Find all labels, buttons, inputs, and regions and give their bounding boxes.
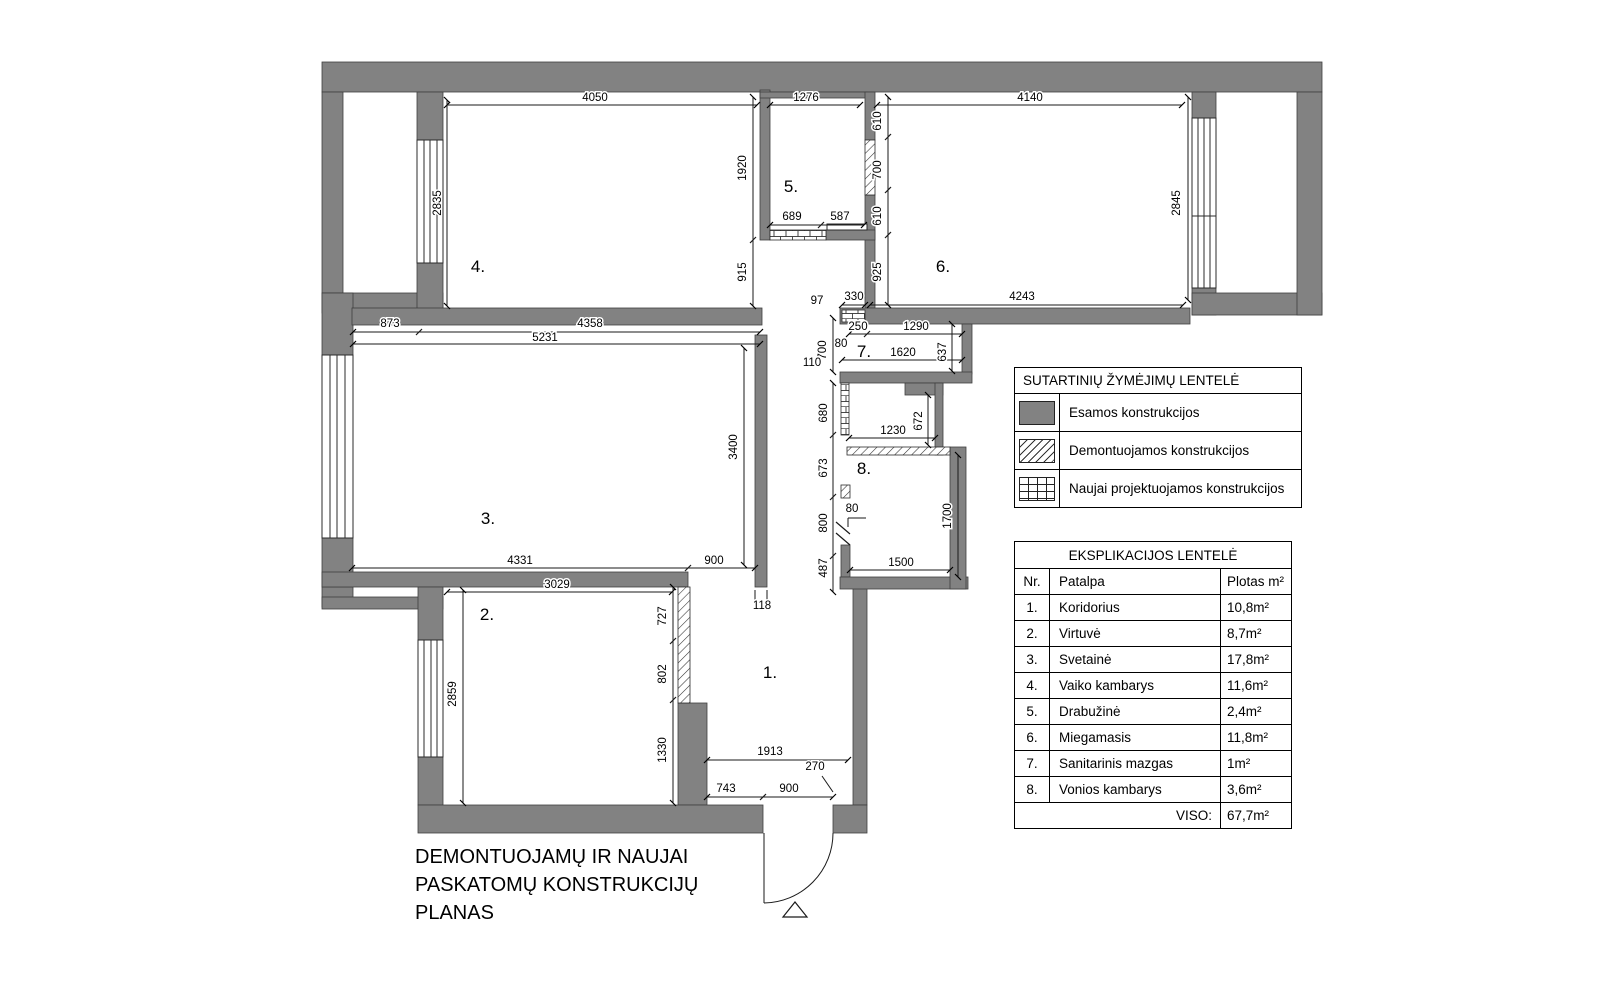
row-nr: 5. [1015, 699, 1050, 724]
dim-label: 2859 [447, 681, 459, 707]
dim-label: 689 [782, 211, 801, 223]
drawing-title: DEMONTUOJAMŲ IR NAUJAI PASKATOMŲ KONSTRU… [415, 843, 698, 927]
room-label-7: 7. [857, 342, 871, 361]
table-row: 4. Vaiko kambarys 11,6m² [1015, 673, 1291, 699]
dim-label: 1290 [903, 321, 929, 333]
row-area: 11,6m² [1221, 673, 1291, 698]
table-row: 6. Miegamasis 11,8m² [1015, 725, 1291, 751]
dim-label: 1276 [793, 92, 819, 104]
dim-label: 743 [716, 783, 735, 795]
dim-label: 4358 [577, 318, 603, 330]
dim-label: 3400 [728, 434, 740, 460]
dim-label: 118 [753, 600, 771, 612]
row-name: Koridorius [1050, 595, 1221, 620]
row-area: 11,8m² [1221, 725, 1291, 750]
dim-label: 672 [913, 411, 925, 430]
total-label: VISO: [1015, 803, 1221, 828]
dim-label: 900 [779, 783, 798, 795]
dim-label: 1230 [880, 425, 906, 437]
dim-label: 5231 [532, 332, 558, 344]
dim-label: 637 [937, 342, 949, 361]
dim-label: 680 [818, 403, 830, 422]
row-name: Miegamasis [1050, 725, 1221, 750]
dim-label: 1330 [657, 737, 669, 763]
dim-label: 4140 [1017, 92, 1043, 104]
drawing-title-line3: PLANAS [415, 899, 698, 927]
total-value: 67,7m² [1221, 803, 1291, 828]
row-area: 8,7m² [1221, 621, 1291, 646]
explication-table: EKSPLIKACIJOS LENTELĖ Nr. Patalpa Plotas… [1014, 541, 1292, 829]
dim-label: 900 [704, 555, 723, 567]
room-labels: 1. 2. 3. 4. 5. 6. 7. 8. [471, 177, 950, 682]
dim-label: 3029 [544, 579, 570, 591]
table-row: 7. Sanitarinis mazgas 1m² [1015, 751, 1291, 777]
table-row: 2. Virtuvė 8,7m² [1015, 621, 1291, 647]
row-area: 10,8m² [1221, 595, 1291, 620]
dim-label: 700 [872, 160, 884, 179]
legend-title: SUTARTINIŲ ŽYMĖJIMŲ LENTELĖ [1015, 368, 1301, 394]
dim-label: 1700 [942, 503, 954, 529]
door-swing-arc [764, 833, 833, 903]
dim-label: 727 [657, 606, 669, 625]
drawing-title-line1: DEMONTUOJAMŲ IR NAUJAI [415, 843, 698, 871]
entrance-triangle-icon [783, 902, 807, 917]
dim-label: 873 [380, 318, 399, 330]
row-nr: 6. [1015, 725, 1050, 750]
dim-label: 2835 [432, 190, 444, 216]
dim-label: 925 [872, 262, 884, 281]
legend-table: SUTARTINIŲ ŽYMĖJIMŲ LENTELĖ Esamos konst… [1014, 367, 1302, 508]
brick-swatch-icon [1019, 477, 1055, 501]
dim-label: 110 [803, 357, 821, 369]
explication-title: EKSPLIKACIJOS LENTELĖ [1015, 542, 1291, 569]
row-area: 17,8m² [1221, 647, 1291, 672]
dim-label: 915 [737, 262, 749, 281]
dim-label: 4331 [507, 555, 533, 567]
row-nr: 1. [1015, 595, 1050, 620]
dim-label: 587 [830, 211, 849, 223]
legend-label: Naujai projektuojamos konstrukcijos [1060, 470, 1301, 507]
dim-label: 800 [818, 513, 830, 532]
dim-label: 2845 [1171, 190, 1183, 216]
room-label-1: 1. [763, 663, 777, 682]
legend-row-demolished: Demontuojamos konstrukcijos [1015, 432, 1301, 470]
row-name: Sanitarinis mazgas [1050, 751, 1221, 776]
room-label-4: 4. [471, 257, 485, 276]
dim-label: 1620 [890, 347, 916, 359]
table-row: 5. Drabužinė 2,4m² [1015, 699, 1291, 725]
row-name: Vaiko kambarys [1050, 673, 1221, 698]
dim-label: 4050 [582, 92, 608, 104]
row-nr: 3. [1015, 647, 1050, 672]
legend-label: Esamos konstrukcijos [1060, 394, 1301, 431]
demolished-walls [678, 140, 950, 703]
header-area: Plotas m² [1221, 569, 1291, 594]
dim-label: 80 [846, 503, 859, 515]
dim-label: 97 [811, 295, 824, 307]
row-name: Drabužinė [1050, 699, 1221, 724]
header-nr: Nr. [1015, 569, 1050, 594]
row-nr: 8. [1015, 777, 1050, 802]
row-nr: 7. [1015, 751, 1050, 776]
row-area: 3,6m² [1221, 777, 1291, 802]
total-row: VISO: 67,7m² [1015, 803, 1291, 828]
floor-plan-svg: 4050 1276 4140 2835 1920 915 689 587 610… [0, 0, 1600, 987]
header-room: Patalpa [1050, 569, 1221, 594]
room-label-6: 6. [936, 257, 950, 276]
dim-label: 250 [848, 321, 867, 333]
dim-label: 1920 [737, 155, 749, 181]
dim-label: 80 [835, 338, 848, 350]
room-label-3: 3. [481, 509, 495, 528]
dim-label: 1500 [888, 557, 914, 569]
explication-header-row: Nr. Patalpa Plotas m² [1015, 569, 1291, 595]
row-area: 1m² [1221, 751, 1291, 776]
row-nr: 2. [1015, 621, 1050, 646]
legend-row-new: Naujai projektuojamos konstrukcijos [1015, 470, 1301, 507]
dim-label: 673 [818, 458, 830, 477]
dim-label: 4243 [1009, 291, 1035, 303]
drawing-title-line2: PASKATOMŲ KONSTRUKCIJŲ [415, 871, 698, 899]
diagonal-hatch-swatch-icon [1019, 439, 1055, 463]
legend-label: Demontuojamos konstrukcijos [1060, 432, 1301, 469]
row-name: Vonios kambarys [1050, 777, 1221, 802]
row-area: 2,4m² [1221, 699, 1291, 724]
table-row: 3. Svetainė 17,8m² [1015, 647, 1291, 673]
solid-gray-swatch-icon [1019, 401, 1055, 425]
dim-label: 487 [818, 558, 830, 577]
row-nr: 4. [1015, 673, 1050, 698]
dim-label: 330 [844, 291, 863, 303]
dim-label: 270 [805, 761, 824, 773]
legend-row-existing: Esamos konstrukcijos [1015, 394, 1301, 432]
dim-label: 610 [872, 111, 884, 130]
dim-label: 802 [657, 664, 669, 683]
row-name: Svetainė [1050, 647, 1221, 672]
table-row: 8. Vonios kambarys 3,6m² [1015, 777, 1291, 803]
dim-label: 1913 [757, 746, 783, 758]
dim-label: 610 [872, 206, 884, 225]
entrance-door [764, 833, 833, 917]
table-row: 1. Koridorius 10,8m² [1015, 595, 1291, 621]
room-label-5: 5. [784, 177, 798, 196]
row-name: Virtuvė [1050, 621, 1221, 646]
room-label-2: 2. [480, 605, 494, 624]
room-label-8: 8. [857, 459, 871, 478]
